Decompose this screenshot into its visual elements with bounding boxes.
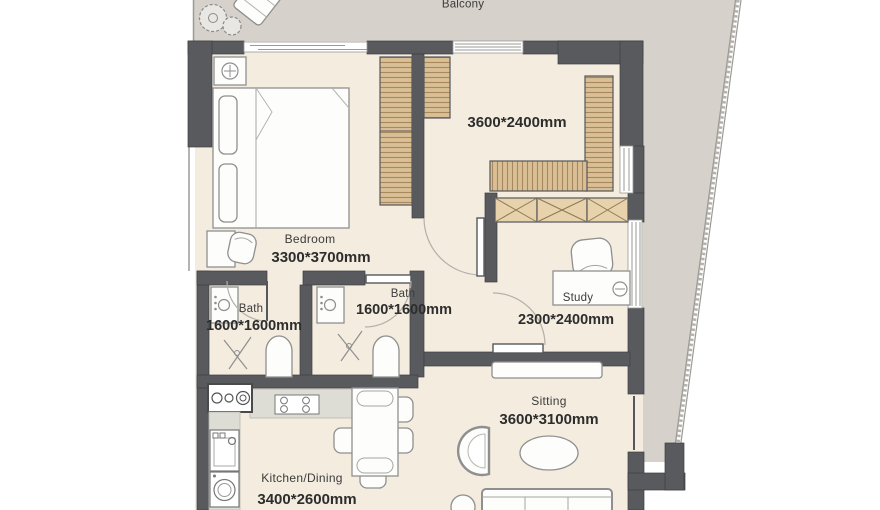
tv-unit — [492, 362, 602, 378]
stove — [275, 395, 319, 414]
closet-shelves — [495, 198, 628, 222]
sofa — [482, 489, 612, 510]
room-dim-kitchen: 3400*2600mm — [257, 491, 356, 508]
kitchen-sink — [210, 430, 239, 471]
room-label-sitting: Sitting — [531, 394, 566, 408]
coffee-table — [520, 436, 578, 470]
room-label-bedroom: Bedroom — [285, 232, 336, 246]
room-label-bath-ensuite: Bath — [239, 303, 263, 315]
floor-plan-svg: Balcony 3600*2400mm Bedroom 3300*3700mm … — [0, 0, 880, 510]
wardrobe-dressing-left — [424, 57, 450, 118]
room-dim-bath-ensuite: 1600*1600mm — [206, 318, 302, 334]
washing-machine — [210, 472, 239, 507]
right-window-upper — [620, 146, 633, 193]
room-dim-sitting: 3600*3100mm — [499, 411, 598, 428]
room-dim-bath-hall: 1600*1600mm — [356, 302, 452, 318]
room-label-kitchen: Kitchen/Dining — [261, 471, 343, 485]
room-label-study: Study — [563, 292, 593, 304]
room-label-bath-hall: Bath — [391, 288, 415, 300]
bed — [213, 88, 349, 228]
balcony-side-floor — [643, 0, 737, 462]
bed-pillow — [219, 96, 237, 154]
room-dim-study: 2300*2400mm — [518, 312, 614, 328]
room-dim-bedroom: 3300*3700mm — [271, 249, 370, 266]
bed-pillow — [219, 164, 237, 222]
top-window — [453, 41, 523, 53]
floor-plan: Balcony 3600*2400mm Bedroom 3300*3700mm … — [0, 0, 880, 510]
bedside-table — [214, 57, 246, 85]
room-dim-dressing: 3600*2400mm — [467, 114, 566, 131]
cooktop-unit — [208, 384, 252, 412]
balcony-sliding-window — [244, 42, 367, 52]
wardrobe-dressing-right — [585, 76, 613, 191]
dining-table — [352, 388, 398, 476]
toilet-hall — [373, 336, 399, 377]
room-label-balcony: Balcony — [442, 0, 484, 11]
washbasin-hall — [317, 287, 344, 323]
wardrobe-dressing-bottom — [490, 161, 587, 191]
toilet-ensuite — [266, 336, 292, 377]
